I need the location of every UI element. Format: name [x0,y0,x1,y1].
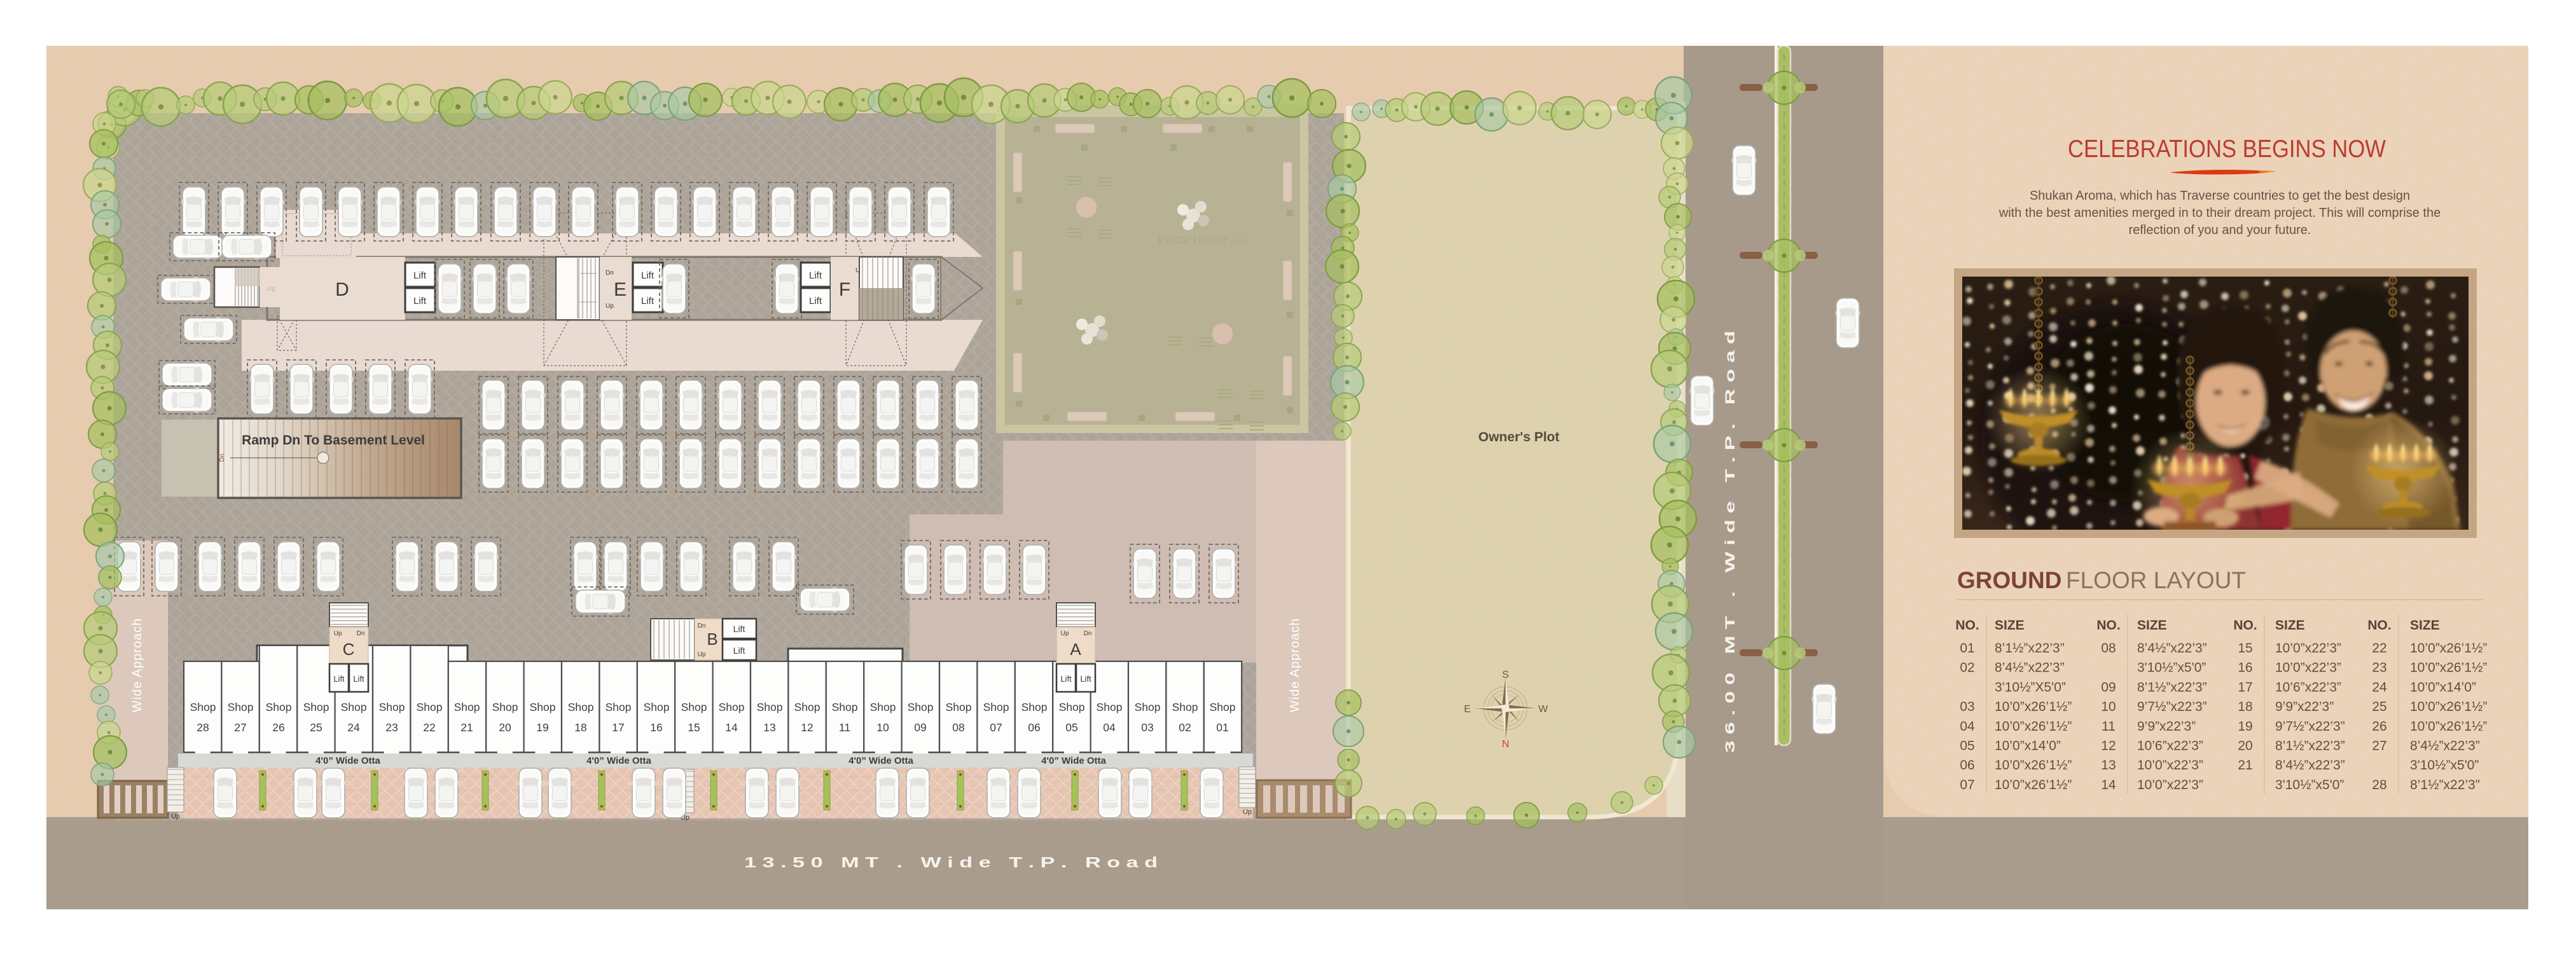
svg-text:Shop: Shop [1021,701,1048,713]
svg-text:Shop: Shop [1097,701,1123,713]
svg-text:8’4½”x22’3”: 8’4½”x22’3” [2410,739,2480,754]
svg-text:Shop: Shop [568,701,594,713]
svg-text:10’0”x26’1½”: 10’0”x26’1½” [1995,758,2072,773]
svg-text:Shop: Shop [492,701,518,713]
svg-text:Shukan Aroma, which has Traver: Shukan Aroma, which has Traverse countri… [2030,189,2410,203]
svg-text:11: 11 [839,721,850,734]
svg-text:NO.: NO. [2367,618,2391,633]
svg-text:10’6”x22’3”: 10’6”x22’3” [2275,680,2341,694]
svg-text:Shop: Shop [228,701,254,713]
svg-text:10’0”x26’1½”: 10’0”x26’1½” [1995,778,2072,792]
svg-text:Dn: Dn [698,623,706,630]
svg-text:Shop: Shop [379,701,405,713]
svg-text:Shop: Shop [832,701,858,713]
svg-text:Lift: Lift [1080,674,1091,684]
svg-text:3'10½”x5'0”: 3'10½”x5'0” [2137,661,2206,675]
svg-text:10’0”x26’1½”: 10’0”x26’1½” [2410,719,2487,734]
svg-text:20: 20 [499,721,511,734]
svg-text:8’4½”x22’3”: 8’4½”x22’3” [2137,641,2207,656]
svg-text:Lift: Lift [641,296,654,306]
svg-text:B: B [707,630,717,649]
svg-text:10’0”x26’1½”: 10’0”x26’1½” [2410,661,2487,675]
svg-text:23: 23 [2372,661,2386,675]
svg-text:Shop: Shop [757,701,783,713]
svg-text:C: C [343,640,355,659]
svg-text:16: 16 [650,721,662,734]
svg-text:Shop: Shop [1059,701,1085,713]
svg-text:26: 26 [2372,719,2386,734]
svg-text:SIZE: SIZE [2137,618,2167,633]
svg-text:NO.: NO. [1955,618,1979,633]
svg-text:19: 19 [536,721,548,734]
svg-text:06: 06 [1028,721,1040,734]
svg-text:3 6 . 0 0 M T . W i d e: 3 6 . 0 0 M T . W i d e T . P . R o a d [1723,331,1738,753]
svg-text:02: 02 [1179,721,1191,734]
svg-text:4'0” Wide Otta: 4'0” Wide Otta [586,755,651,766]
svg-text:14: 14 [725,721,738,734]
svg-text:10: 10 [2101,699,2116,714]
svg-text:Shop: Shop [908,701,934,713]
svg-text:S: S [1502,670,1509,680]
svg-text:NO.: NO. [2096,618,2120,633]
svg-text:04: 04 [1103,721,1116,734]
svg-text:GROUND: GROUND [1957,567,2061,593]
svg-text:.com: .com [1229,237,1246,245]
svg-text:01: 01 [1216,721,1228,734]
svg-text:15: 15 [2238,641,2252,656]
svg-text:02: 02 [1960,661,1974,675]
svg-text:03: 03 [1960,699,1974,714]
svg-text:06: 06 [1960,758,1974,773]
svg-text:22: 22 [423,721,435,734]
svg-text:07: 07 [1960,778,1974,792]
svg-text:20: 20 [2238,739,2252,754]
svg-text:10’6”x22’3”: 10’6”x22’3” [2137,739,2203,754]
svg-text:09: 09 [2101,680,2116,694]
svg-text:01: 01 [1960,641,1974,656]
svg-text:Lift: Lift [333,674,345,684]
svg-text:Shop: Shop [1135,701,1161,713]
svg-text:9’9”x22’3”: 9’9”x22’3” [2275,699,2334,714]
svg-text:Shop: Shop [606,701,632,713]
svg-text:8’1½”x22’3”: 8’1½”x22’3” [2137,680,2207,694]
svg-text:8’1½”x22’3”: 8’1½”x22’3” [2410,778,2480,792]
svg-text:8’4½”x22’3”: 8’4½”x22’3” [2275,758,2345,773]
svg-text:25: 25 [2372,699,2386,714]
svg-text:Lift: Lift [733,624,745,634]
svg-text:10’0”x26’1½”: 10’0”x26’1½” [2410,699,2487,714]
svg-text:18: 18 [574,721,586,734]
svg-text:SIZE: SIZE [2275,618,2305,633]
svg-text:Up: Up [334,630,342,637]
svg-text:Ramp Dn To Basement Level: Ramp Dn To Basement Level [242,433,425,448]
svg-text:with the best amenities merged: with the best amenities merged in to the… [1998,206,2441,220]
svg-text:Shop: Shop [1172,701,1198,713]
svg-text:10’0”x26’1½”: 10’0”x26’1½” [1995,719,2072,734]
svg-text:Shop: Shop [190,701,216,713]
svg-text:14: 14 [2101,778,2116,792]
svg-text:Up: Up [606,303,614,310]
svg-text:10’0”x22’3”: 10’0”x22’3” [2275,661,2341,675]
svg-text:PROPTIGER: PROPTIGER [1158,234,1228,246]
svg-text:Shop: Shop [341,701,367,713]
svg-text:03: 03 [1141,721,1153,734]
svg-text:11: 11 [2102,719,2116,734]
svg-text:05: 05 [1065,721,1077,734]
svg-text:8’1½”x22’3”: 8’1½”x22’3” [1995,641,2065,656]
svg-text:Lift: Lift [809,296,822,306]
svg-text:Up: Up [171,813,180,820]
svg-text:4'0” Wide Otta: 4'0” Wide Otta [1041,755,1106,766]
svg-text:Lift: Lift [1060,674,1072,684]
svg-text:9’9”x22’3”: 9’9”x22’3” [2137,719,2196,734]
svg-text:NO.: NO. [2233,618,2257,633]
svg-text:10’0”x26’1½”: 10’0”x26’1½” [2410,641,2487,656]
svg-text:07: 07 [990,721,1002,734]
svg-text:10’0”x14’0”: 10’0”x14’0” [1995,739,2061,754]
svg-text:08: 08 [2101,641,2116,656]
svg-text:15: 15 [688,721,700,734]
svg-text:08: 08 [952,721,964,734]
svg-text:D: D [335,279,349,300]
svg-text:10’0”x26’1½”: 10’0”x26’1½” [1995,699,2072,714]
svg-text:27: 27 [234,721,246,734]
svg-text:Shop: Shop [983,701,1009,713]
svg-text:Shop: Shop [870,701,896,713]
svg-text:12: 12 [2101,739,2116,754]
svg-text:Up: Up [267,286,275,293]
svg-text:28: 28 [197,721,209,734]
svg-text:12: 12 [801,721,813,734]
svg-text:22: 22 [2372,641,2386,656]
svg-text:Dn: Dn [219,454,226,462]
svg-text:26: 26 [272,721,284,734]
svg-text:25: 25 [310,721,322,734]
svg-text:9’7½”x22’3”: 9’7½”x22’3” [2275,719,2345,734]
svg-text:SIZE: SIZE [2410,618,2440,633]
svg-text:reflection of you and your fut: reflection of you and your future. [2129,223,2311,237]
svg-text:Shop: Shop [303,701,329,713]
svg-text:17: 17 [2238,680,2252,694]
svg-text:Shop: Shop [530,701,556,713]
svg-text:10’0”x22’3”: 10’0”x22’3” [2137,758,2203,773]
svg-text:Shop: Shop [1210,701,1236,713]
svg-text:10: 10 [876,721,889,734]
svg-text:Lift: Lift [413,270,427,281]
svg-text:Lift: Lift [413,296,427,306]
svg-text:Dn: Dn [1084,630,1092,637]
svg-text:3'10½”x5'0”: 3'10½”x5'0” [2275,778,2344,792]
svg-text:28: 28 [2372,778,2386,792]
svg-text:E: E [614,279,627,300]
svg-text:Shop: Shop [266,701,292,713]
svg-text:10’0”x14’0”: 10’0”x14’0” [2410,680,2476,694]
svg-text:Lift: Lift [353,674,364,684]
svg-text:9’7½”x22’3”: 9’7½”x22’3” [2137,699,2207,714]
svg-text:FLOOR LAYOUT: FLOOR LAYOUT [2066,567,2246,593]
svg-text:Lift: Lift [641,270,654,281]
svg-text:E: E [1464,704,1471,715]
svg-text:09: 09 [914,721,926,734]
svg-text:Wide Approach: Wide Approach [130,618,144,713]
svg-text:Up: Up [698,651,706,658]
svg-text:Dn: Dn [606,270,614,277]
svg-text:Shop: Shop [681,701,707,713]
svg-text:24: 24 [347,721,360,734]
svg-text:13: 13 [763,721,775,734]
svg-text:1 3 . 5 0 M T . W i d e: 1 3 . 5 0 M T . W i d e T . P . R o a d [744,854,1158,871]
svg-text:N: N [1502,739,1509,750]
svg-text:Shop: Shop [454,701,480,713]
svg-text:05: 05 [1960,739,1974,754]
svg-text:23: 23 [385,721,398,734]
svg-text:Up: Up [1061,630,1069,637]
svg-text:Lift: Lift [809,270,822,281]
svg-text:8’4½”x22’3”: 8’4½”x22’3” [1995,661,2065,675]
svg-text:Shop: Shop [719,701,745,713]
svg-text:Owner's Plot: Owner's Plot [1478,430,1560,444]
svg-text:Shop: Shop [417,701,443,713]
svg-text:F: F [839,279,850,300]
svg-text:Up: Up [1243,808,1252,816]
svg-text:SIZE: SIZE [1995,618,2025,633]
svg-text:A: A [1070,640,1081,659]
svg-text:CELEBRATIONS BEGINS NOW: CELEBRATIONS BEGINS NOW [2068,135,2386,163]
svg-text:Lift: Lift [733,645,745,656]
svg-text:Shop: Shop [644,701,670,713]
svg-text:8’1½”x22’3”: 8’1½”x22’3” [2275,739,2345,754]
svg-text:3'10½”X5'0”: 3'10½”X5'0” [1995,680,2066,694]
svg-text:W: W [1538,704,1548,715]
svg-text:24: 24 [2372,680,2387,694]
svg-text:18: 18 [2238,699,2252,714]
svg-text:Dn: Dn [357,630,365,637]
svg-text:04: 04 [1960,719,1975,734]
svg-text:13: 13 [2101,758,2116,773]
svg-text:21: 21 [2238,758,2252,773]
svg-text:4'0” Wide Otta: 4'0” Wide Otta [315,755,380,766]
svg-text:10’0”x22’3”: 10’0”x22’3” [2275,641,2341,656]
svg-text:16: 16 [2238,661,2252,675]
svg-text:17: 17 [612,721,624,734]
svg-text:27: 27 [2372,739,2386,754]
svg-text:Shop: Shop [794,701,821,713]
svg-text:Shop: Shop [946,701,972,713]
svg-text:19: 19 [2238,719,2252,734]
svg-text:4'0” Wide Otta: 4'0” Wide Otta [848,755,913,766]
svg-text:3'10½”x5'0”: 3'10½”x5'0” [2410,758,2479,773]
svg-text:10’0”x22’3”: 10’0”x22’3” [2137,778,2203,792]
svg-text:21: 21 [460,721,473,734]
svg-text:Wide Approach: Wide Approach [1288,618,1302,713]
